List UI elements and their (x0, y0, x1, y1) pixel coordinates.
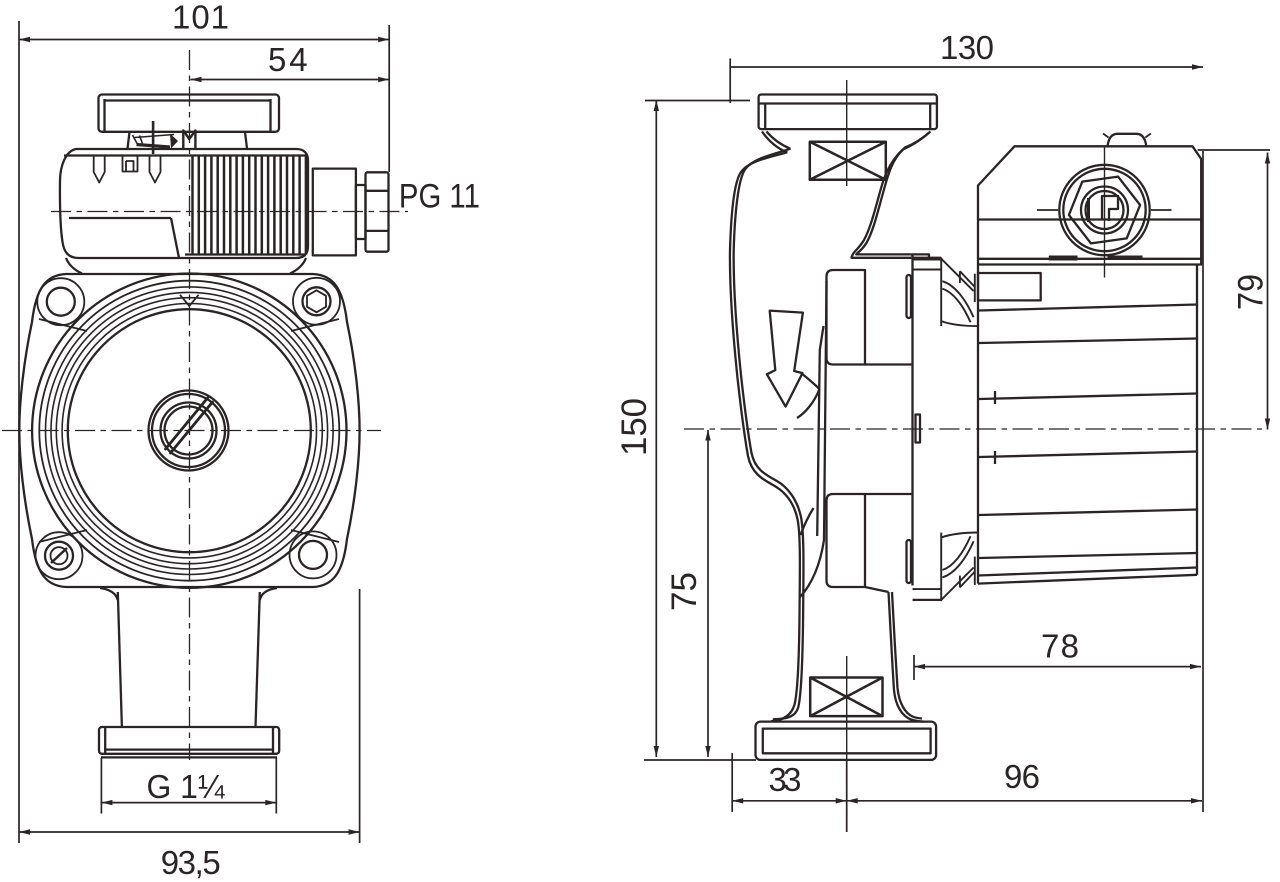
svg-text:130: 130 (940, 29, 994, 66)
svg-text:96: 96 (1004, 758, 1040, 795)
svg-text:93,5: 93,5 (161, 844, 221, 881)
svg-text:G 1¼: G 1¼ (147, 768, 225, 805)
svg-text:PG 11: PG 11 (399, 178, 480, 216)
svg-text:75: 75 (665, 572, 704, 611)
svg-text:54: 54 (268, 41, 308, 78)
svg-text:78: 78 (1041, 628, 1079, 665)
svg-text:79: 79 (1232, 274, 1271, 310)
svg-text:101: 101 (172, 0, 229, 36)
svg-text:150: 150 (615, 398, 654, 456)
svg-text:33: 33 (769, 761, 802, 798)
